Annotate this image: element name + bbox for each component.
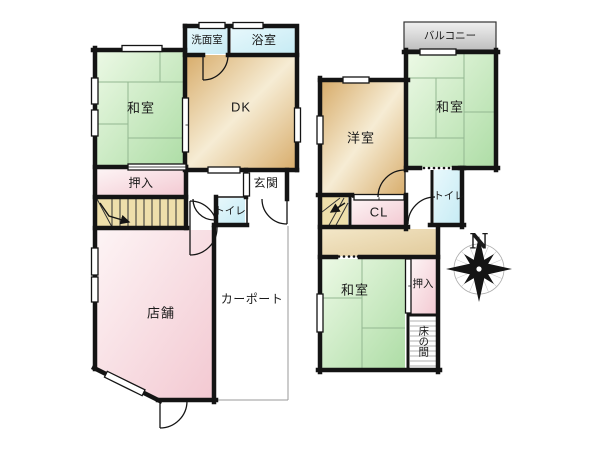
hall-2f bbox=[322, 229, 436, 256]
label-oshiire-2f: 押入 bbox=[413, 279, 434, 290]
label-washitsu-2f-south: 和室 bbox=[341, 284, 369, 297]
label-washroom-1f: 洗面室 bbox=[191, 35, 223, 46]
label-washitsu-1f: 和室 bbox=[127, 102, 155, 115]
label-tokonoma-2f: 床の間 bbox=[418, 325, 429, 357]
label-toilet-1f: トイレ bbox=[214, 206, 246, 217]
label-compass-north: N bbox=[469, 231, 488, 252]
label-bathroom-1f: 浴室 bbox=[251, 34, 276, 46]
label-toilet-2f: トイレ bbox=[433, 191, 465, 202]
label-cl-2f: CL bbox=[370, 206, 389, 219]
label-carport-1f: カーポート bbox=[221, 293, 284, 305]
room-washitsu-2f-south bbox=[322, 259, 405, 369]
label-yoshitsu-2f: 洋室 bbox=[347, 132, 375, 145]
floor-plan-canvas: 洗面室 浴室 和室 DK 押入 玄関 トイレ 店舗 カーポート バルコニー 和室… bbox=[0, 0, 600, 450]
label-genkan-1f: 玄関 bbox=[253, 177, 278, 189]
label-washitsu-2f-north: 和室 bbox=[436, 101, 464, 114]
label-oshiire-1f: 押入 bbox=[128, 177, 153, 189]
label-dk-1f: DK bbox=[231, 101, 251, 114]
floor-plan-drawing bbox=[0, 0, 600, 450]
carport-boundary-line bbox=[216, 226, 288, 400]
label-shop-1f: 店舗 bbox=[147, 307, 175, 320]
label-balcony-2f: バルコニー bbox=[424, 31, 476, 42]
